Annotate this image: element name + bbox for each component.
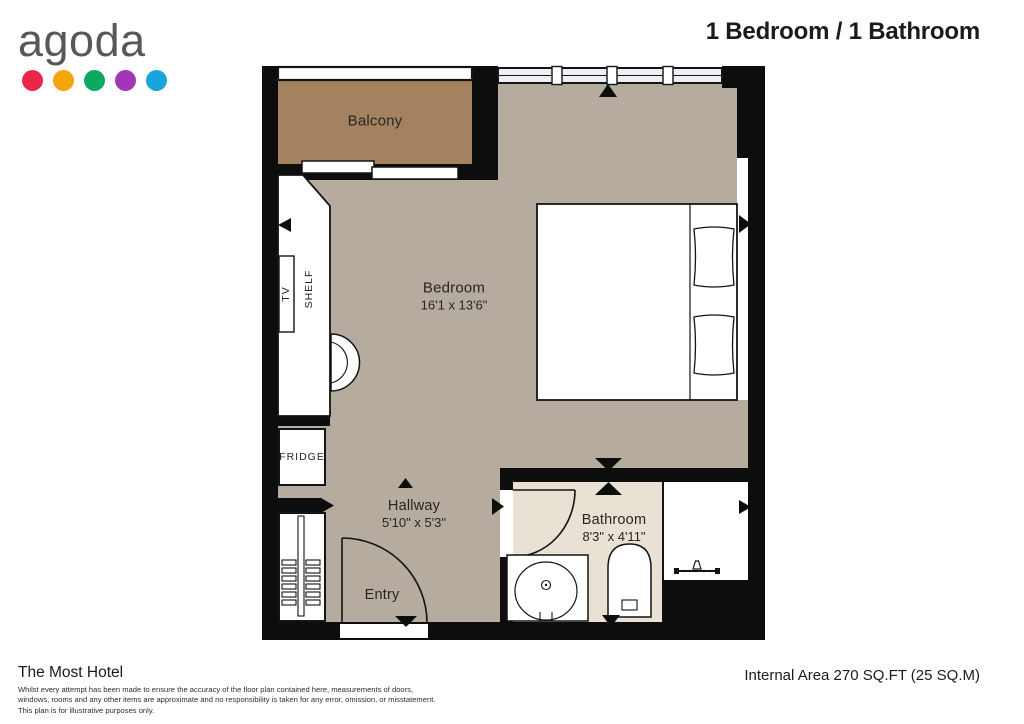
tv-label: TV <box>280 286 292 301</box>
floorplan-page: agoda 1 Bedroom / 1 Bathroom <box>0 0 1024 724</box>
footer-left: The Most Hotel Whilst every attempt has … <box>18 664 458 716</box>
balcony-label: Balcony <box>348 113 403 130</box>
logo-dot-purple <box>115 70 136 91</box>
agoda-logo-dots <box>22 70 167 91</box>
logo-dot-red <box>22 70 43 91</box>
closet-hangers <box>282 516 320 616</box>
entry-label: Entry <box>365 587 400 603</box>
bathroom-label: Bathroom 8'3" x 4'11" <box>582 512 646 544</box>
arrow-right-closet <box>321 498 334 513</box>
agoda-logo: agoda <box>18 16 167 91</box>
disclaimer: Whilst every attempt has been made to en… <box>18 685 458 716</box>
hallway-label: Hallway 5'10" x 5'3" <box>382 498 446 530</box>
arrow-down-entry <box>395 616 417 627</box>
logo-dot-yellow <box>53 70 74 91</box>
bathroom-dimensions: 8'3" x 4'11" <box>582 529 646 544</box>
arrow-up-bowtie <box>595 482 622 495</box>
shower-head-icon <box>674 561 720 574</box>
sink <box>507 555 588 626</box>
disclaimer-line: windows, rooms and any other items are a… <box>18 695 458 705</box>
bathroom-door <box>513 490 575 557</box>
internal-area-text: Internal Area 270 SQ.FT (25 SQ.M) <box>744 667 980 684</box>
entry-door <box>342 538 427 624</box>
agoda-logo-text: agoda <box>18 16 167 66</box>
hallway-dimensions: 5'10" x 5'3" <box>382 515 446 530</box>
page-title: 1 Bedroom / 1 Bathroom <box>706 18 980 46</box>
hotel-name: The Most Hotel <box>18 664 458 682</box>
arrow-right-shower <box>739 500 751 514</box>
logo-dot-blue <box>146 70 167 91</box>
shelf-label: SHELF <box>303 270 315 309</box>
window-band <box>498 67 722 85</box>
balcony-railing <box>278 67 472 80</box>
arrow-right-bed <box>739 215 751 233</box>
sliding-door <box>302 161 458 179</box>
toilet <box>608 544 651 617</box>
plan-linework <box>262 64 765 640</box>
bed <box>537 204 737 400</box>
fridge-label: FRIDGE <box>279 451 325 463</box>
bedroom-dimensions: 16'1 x 13'6" <box>421 298 488 313</box>
arrow-down-bathroom <box>602 615 620 627</box>
arrow-up-hallway <box>398 478 413 488</box>
pillow <box>694 315 734 375</box>
arrow-down-bowtie <box>595 458 622 471</box>
chair <box>331 334 360 391</box>
pillow <box>694 227 734 287</box>
logo-dot-green <box>84 70 105 91</box>
bedroom-label: Bedroom 16'1 x 13'6" <box>421 280 488 313</box>
arrow-right-bathwall <box>492 498 504 515</box>
floor-plan: Balcony Bedroom 16'1 x 13'6" TV SHELF FR… <box>262 64 765 640</box>
disclaimer-line: Whilst every attempt has been made to en… <box>18 685 458 695</box>
arrow-up-window <box>599 84 617 97</box>
disclaimer-line: This plan is for illustrative purposes o… <box>18 706 458 716</box>
